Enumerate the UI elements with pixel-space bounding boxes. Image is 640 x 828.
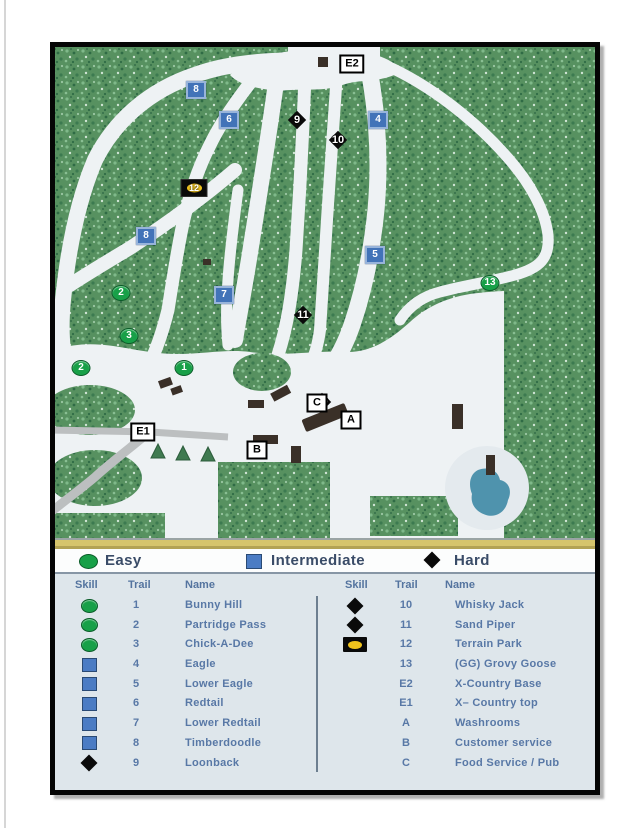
intermediate-icon xyxy=(76,655,102,674)
map-marker-10: 10 xyxy=(326,130,350,150)
intermediate-icon xyxy=(246,554,262,569)
header-trail-right: Trail xyxy=(395,579,418,591)
trail-number: 9 xyxy=(119,757,153,769)
map-marker-label: 2 xyxy=(118,288,124,298)
map-marker-label: 1 xyxy=(181,363,187,373)
trail-row: 5Lower Eagle xyxy=(55,675,315,695)
map-marker-4: 4 xyxy=(368,111,388,129)
trail-number: 11 xyxy=(389,619,423,631)
trail-name: Timberdoodle xyxy=(185,737,261,749)
map-marker-E2: E2 xyxy=(339,55,364,74)
header-skill-left: Skill xyxy=(75,579,98,591)
trail-name: Partridge Pass xyxy=(185,619,266,631)
trail-name: X– Country top xyxy=(455,697,538,709)
trail-name: Whisky Jack xyxy=(455,599,524,611)
map-marker-label: B xyxy=(253,445,261,456)
map-marker-8: 8 xyxy=(136,227,156,245)
trail-row: 8Timberdoodle xyxy=(55,734,315,754)
map-marker-7: 7 xyxy=(214,286,234,304)
map-marker-C: C xyxy=(307,394,328,413)
map-marker-layer: E2869104128115132710321CAE1B xyxy=(55,47,595,538)
map-marker-2: 2 xyxy=(72,360,91,376)
map-marker-label: 13 xyxy=(484,278,495,288)
trail-row: 13(GG) Grovy Goose xyxy=(318,655,595,675)
trail-rows-left: 1Bunny Hill2Partridge Pass3Chick-A-Dee4E… xyxy=(55,596,315,773)
trail-row: 1Bunny Hill xyxy=(55,596,315,616)
easy-icon xyxy=(76,635,102,654)
map-marker-6: 6 xyxy=(219,111,239,129)
map-marker-13: 13 xyxy=(481,275,500,291)
intermediate-icon xyxy=(76,714,102,733)
map-marker-3: 3 xyxy=(120,328,139,344)
trail-map-poster: E2869104128115132710321CAE1B Easy Interm… xyxy=(50,42,600,795)
map-marker-label: 5 xyxy=(372,250,378,260)
trail-number: 5 xyxy=(119,678,153,690)
trail-row: 6Redtail xyxy=(55,694,315,714)
trail-name: Redtail xyxy=(185,697,224,709)
legend-label-easy: Easy xyxy=(105,552,142,569)
map-marker-label: 3 xyxy=(126,331,132,341)
trail-name: Eagle xyxy=(185,658,216,670)
map-marker-label: 12 xyxy=(189,184,199,193)
terrain-park-icon xyxy=(342,635,368,654)
trail-number: 7 xyxy=(119,717,153,729)
map-marker-12: 12 xyxy=(181,179,208,197)
easy-icon xyxy=(76,616,102,635)
map-marker-label: E2 xyxy=(345,59,358,70)
legend-label-intermediate: Intermediate xyxy=(271,552,365,569)
trail-number: 13 xyxy=(389,658,423,670)
map-marker-E1: E1 xyxy=(130,423,155,442)
trail-row: 4Eagle xyxy=(55,655,315,675)
trail-number: 8 xyxy=(119,737,153,749)
map-marker-2: 2 xyxy=(112,285,131,301)
map-marker-label: 11 xyxy=(297,310,309,321)
trail-row: AWashrooms xyxy=(318,714,595,734)
legend: Easy Intermediate Hard xyxy=(55,549,595,572)
hard-icon xyxy=(76,754,102,773)
intermediate-icon xyxy=(76,675,102,694)
hard-icon xyxy=(342,596,368,615)
trail-name: (GG) Grovy Goose xyxy=(455,658,556,670)
map-marker-5: 5 xyxy=(365,246,385,264)
trail-table: Skill Trail Name Skill Trail Name 1Bunny… xyxy=(55,574,595,790)
trail-row: E2X-Country Base xyxy=(318,675,595,695)
trail-row: 9Loonback xyxy=(55,754,315,774)
trail-row: CFood Service / Pub xyxy=(318,754,595,774)
map-marker-label: 4 xyxy=(375,115,381,125)
map-marker-label: 8 xyxy=(193,85,199,95)
map-marker-label: 7 xyxy=(221,290,227,300)
legend-label-hard: Hard xyxy=(454,552,490,569)
trail-name: X-Country Base xyxy=(455,678,542,690)
trail-number: B xyxy=(389,737,423,749)
trail-number: 1 xyxy=(119,599,153,611)
trail-row: 12Terrain Park xyxy=(318,635,595,655)
trail-name: Food Service / Pub xyxy=(455,757,559,769)
no-skill-icon xyxy=(342,714,368,733)
intermediate-icon xyxy=(76,734,102,753)
hard-icon xyxy=(342,616,368,635)
trail-row: 7Lower Redtail xyxy=(55,714,315,734)
map-marker-label: 8 xyxy=(143,231,149,241)
map-marker-label: 10 xyxy=(332,135,344,146)
trail-name: Loonback xyxy=(185,757,239,769)
map-marker-8: 8 xyxy=(186,81,206,99)
trail-name: Washrooms xyxy=(455,717,520,729)
trail-name: Sand Piper xyxy=(455,619,515,631)
trail-name: Terrain Park xyxy=(455,638,522,650)
trail-name: Lower Eagle xyxy=(185,678,253,690)
no-skill-icon xyxy=(342,675,368,694)
trail-row: 2Partridge Pass xyxy=(55,616,315,636)
trail-map: E2869104128115132710321CAE1B xyxy=(55,47,595,538)
trail-number: 4 xyxy=(119,658,153,670)
map-marker-label: E1 xyxy=(136,427,149,438)
trail-name: Chick-A-Dee xyxy=(185,638,254,650)
header-name-right: Name xyxy=(445,579,475,591)
no-skill-icon xyxy=(342,694,368,713)
trail-row: 11Sand Piper xyxy=(318,616,595,636)
trail-name: Customer service xyxy=(455,737,552,749)
intermediate-icon xyxy=(76,694,102,713)
header-name-left: Name xyxy=(185,579,215,591)
easy-icon xyxy=(79,554,98,569)
trail-name: Bunny Hill xyxy=(185,599,242,611)
trail-number: 2 xyxy=(119,619,153,631)
trail-row: BCustomer service xyxy=(318,734,595,754)
trail-row: 3Chick-A-Dee xyxy=(55,635,315,655)
map-marker-label: C xyxy=(313,398,321,409)
trail-name: Lower Redtail xyxy=(185,717,261,729)
no-skill-icon xyxy=(342,734,368,753)
map-marker-A: A xyxy=(341,411,362,430)
trail-number: E2 xyxy=(389,678,423,690)
trail-number: 10 xyxy=(389,599,423,611)
map-marker-11: 11 xyxy=(291,305,315,325)
header-skill-right: Skill xyxy=(345,579,368,591)
hard-icon xyxy=(424,552,441,569)
header-trail-left: Trail xyxy=(128,579,151,591)
map-marker-label: A xyxy=(347,415,355,426)
trail-number: 3 xyxy=(119,638,153,650)
map-marker-label: 6 xyxy=(226,115,232,125)
map-marker-label: 9 xyxy=(294,115,300,126)
trail-number: 12 xyxy=(389,638,423,650)
map-marker-B: B xyxy=(247,441,268,460)
trail-row: 10Whisky Jack xyxy=(318,596,595,616)
trail-number: A xyxy=(389,717,423,729)
trail-number: C xyxy=(389,757,423,769)
trail-row: E1X– Country top xyxy=(318,694,595,714)
trail-number: E1 xyxy=(389,697,423,709)
map-marker-label: 2 xyxy=(78,363,84,373)
map-marker-1: 1 xyxy=(175,360,194,376)
gold-divider-band xyxy=(55,538,595,549)
page-edge-line xyxy=(4,0,6,828)
no-skill-icon xyxy=(342,655,368,674)
trail-number: 6 xyxy=(119,697,153,709)
easy-icon xyxy=(76,596,102,615)
trail-rows-right: 10Whisky Jack11Sand Piper12Terrain Park1… xyxy=(318,596,595,773)
no-skill-icon xyxy=(342,754,368,773)
map-marker-9: 9 xyxy=(285,110,309,130)
